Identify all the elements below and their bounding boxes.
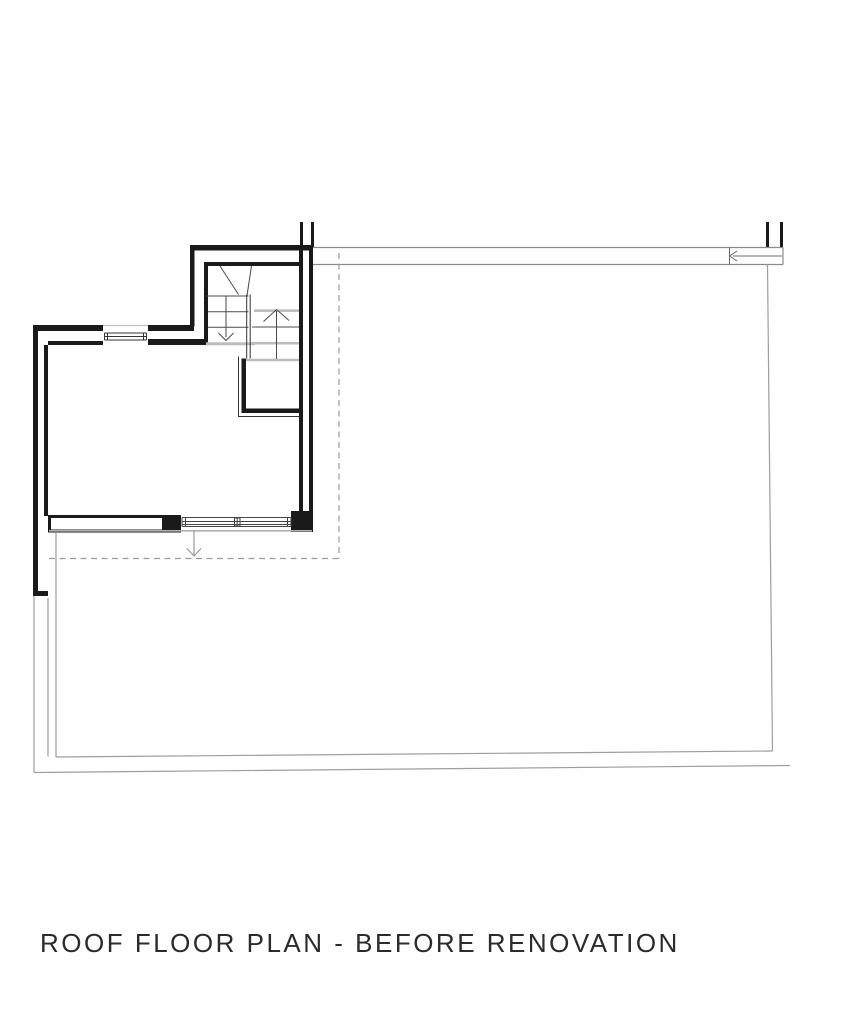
window-icon — [103, 326, 148, 341]
stair-flight-up — [251, 311, 299, 359]
floor-plan-canvas — [0, 0, 842, 1009]
page: ROOF FLOOR PLAN - BEFORE RENOVATION — [0, 0, 842, 1009]
stair-flight-down — [206, 296, 249, 337]
roof-edge-arrow-icon — [730, 251, 783, 261]
page-title: ROOF FLOOR PLAN - BEFORE RENOVATION — [40, 928, 680, 959]
walls — [33, 245, 313, 596]
staircase — [206, 266, 299, 359]
upper-wall-stubs — [302, 222, 782, 248]
roof-edge-band — [300, 248, 783, 265]
stairwell-parapet — [238, 357, 299, 418]
south-wall-outline — [50, 517, 181, 532]
sliding-door-icon — [182, 518, 291, 527]
stair-handrail — [247, 295, 251, 359]
roof-exit-arrow-icon — [187, 531, 201, 556]
